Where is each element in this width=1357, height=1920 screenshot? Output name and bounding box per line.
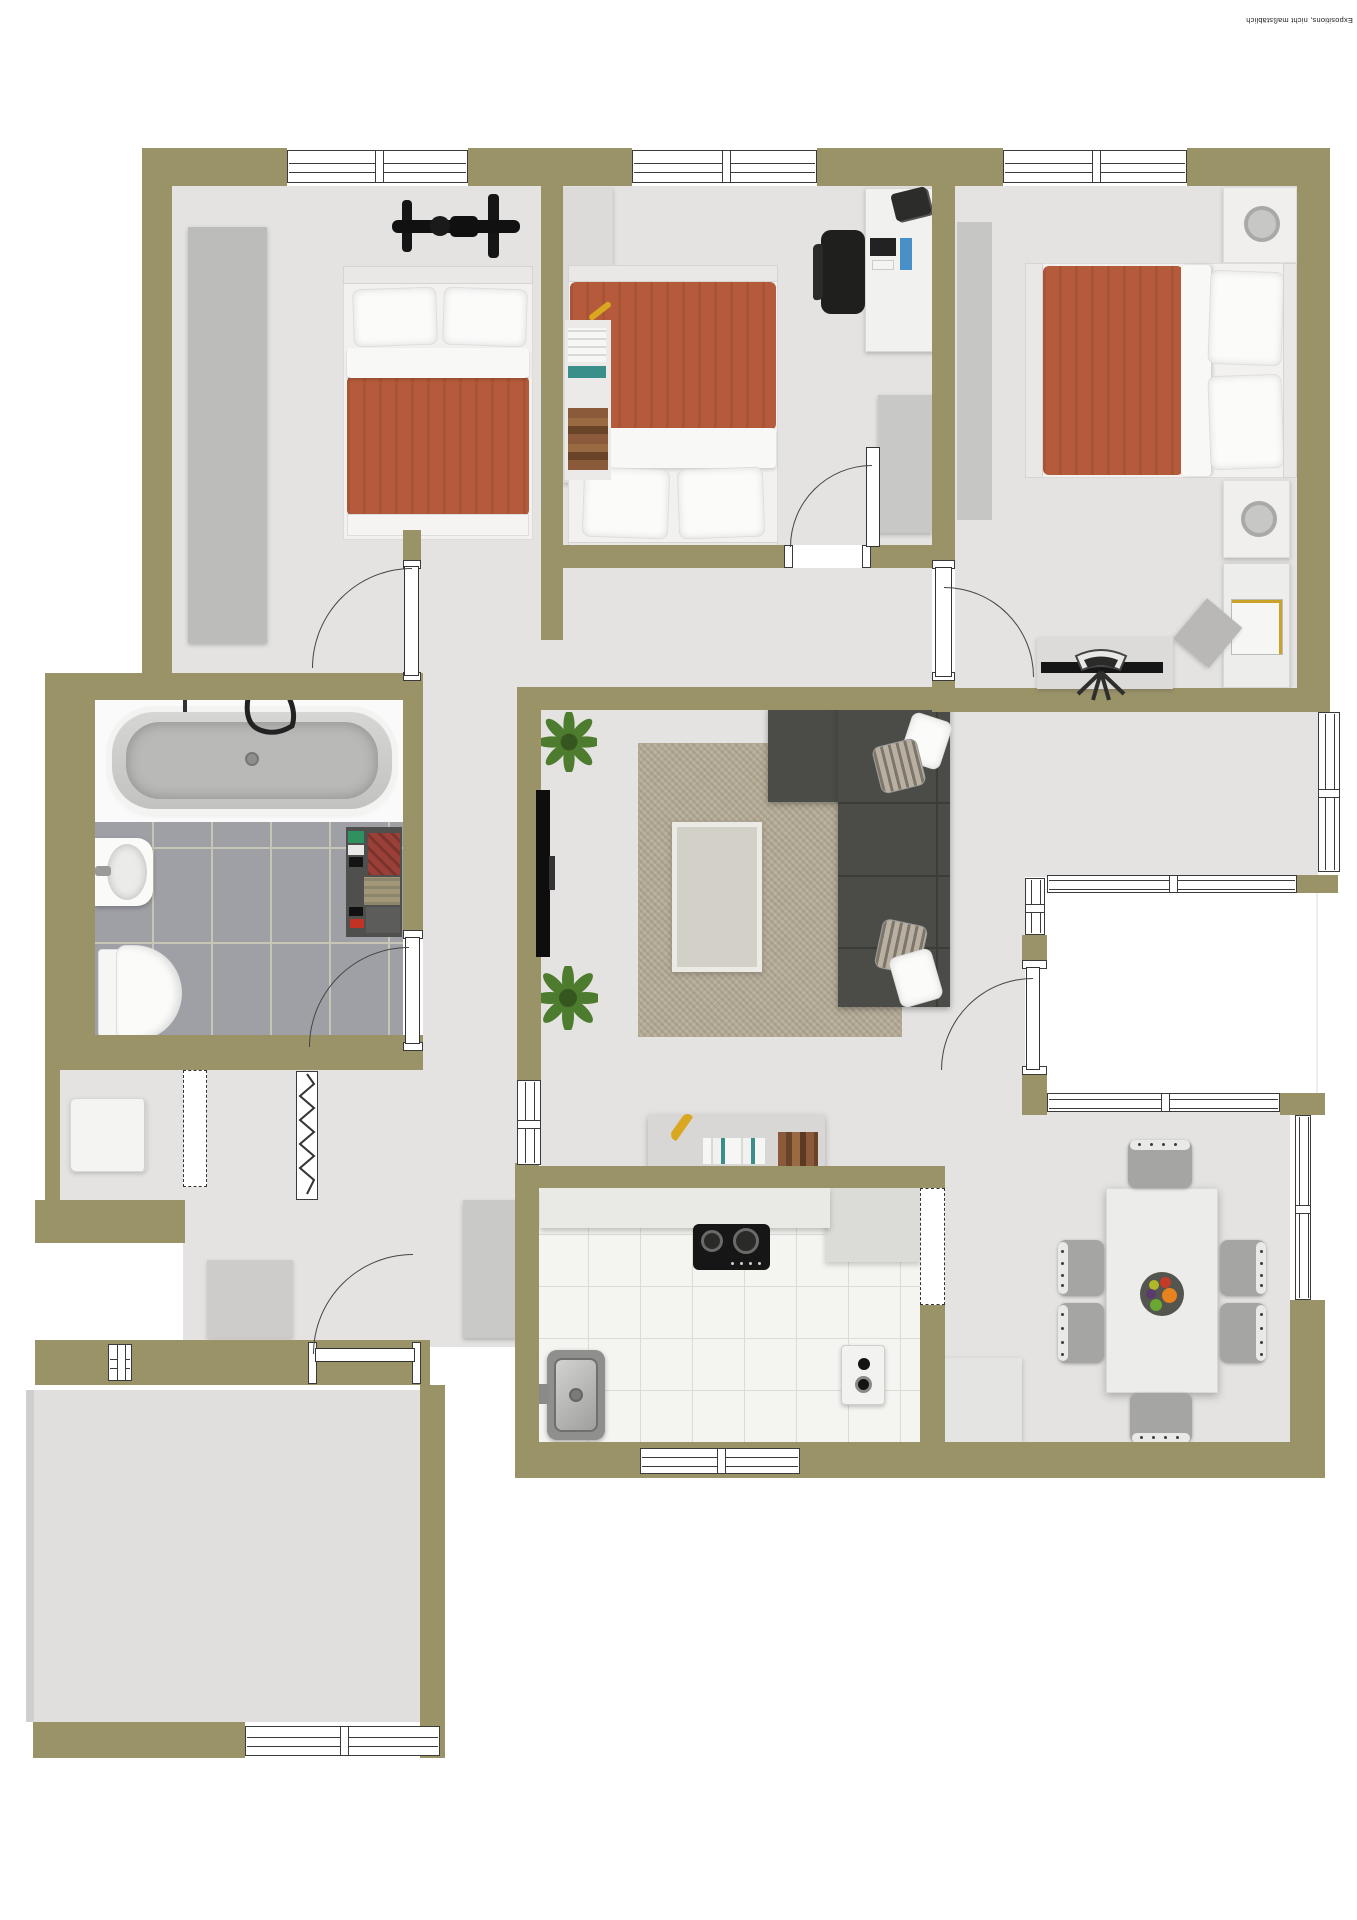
paper-blue [900, 238, 912, 270]
bed-headboard [1283, 263, 1297, 478]
wall [515, 1163, 539, 1478]
window [245, 1726, 440, 1756]
wall [817, 148, 1003, 186]
washing-machine [70, 1098, 147, 1172]
sofa-seam [838, 802, 950, 804]
wall [1297, 186, 1330, 712]
window [1295, 1115, 1311, 1300]
wall [142, 148, 287, 186]
shower-hose-icon [242, 694, 298, 736]
window [1047, 1093, 1280, 1112]
dining-chair [1220, 1303, 1266, 1363]
dining-chair [1130, 1393, 1192, 1443]
fruit-orange [1162, 1288, 1177, 1303]
dining-chair [1220, 1240, 1266, 1296]
gas-hob [693, 1224, 770, 1270]
keyboard [872, 260, 894, 270]
bedroom-2-bookshelf [565, 320, 611, 480]
living-extension-floor [955, 712, 1318, 877]
window [1047, 875, 1297, 893]
burner [701, 1230, 723, 1252]
wall [420, 1385, 445, 1758]
basin-bowl [107, 844, 147, 900]
sofa-seam [838, 875, 950, 877]
wall [35, 1200, 185, 1243]
office-chair-icon [1058, 648, 1144, 704]
bicycle-icon [390, 192, 525, 262]
window [1003, 150, 1187, 183]
bedroom-3-bed [1025, 263, 1297, 478]
kitchen-counter-top [540, 1188, 830, 1228]
storage-opening [183, 1070, 207, 1187]
toilet [98, 945, 184, 1043]
books-brown [568, 408, 608, 470]
wall [1297, 875, 1338, 893]
door-jamb [784, 545, 793, 568]
clothes-black [349, 857, 363, 867]
shoe-black [349, 907, 363, 916]
bathroom-shelf-clothes [346, 827, 402, 937]
books-white [568, 328, 606, 362]
watermark-text: Expositions, nicht maßstäblich [1246, 16, 1353, 25]
office-chair [813, 226, 873, 318]
coffee-table [672, 822, 762, 972]
knob [740, 1262, 743, 1265]
doormat [207, 1260, 293, 1338]
wall [920, 1303, 945, 1442]
books-white-teal [703, 1138, 765, 1164]
sink-drain [569, 1388, 583, 1402]
wall [1290, 1300, 1325, 1442]
bed-blanket [347, 376, 529, 516]
wall [541, 568, 563, 640]
wall [45, 673, 423, 700]
wall [468, 148, 632, 186]
kitchen-appliance [841, 1345, 885, 1405]
bedroom-1-bed [343, 266, 533, 540]
window [640, 1448, 800, 1474]
bed-pillow [677, 467, 765, 540]
window [108, 1344, 132, 1381]
wall [142, 186, 172, 690]
fruit-red [1160, 1277, 1171, 1288]
wall [1280, 1093, 1325, 1115]
dining-chair [1128, 1140, 1192, 1188]
dining-chair [1058, 1240, 1104, 1296]
fruit-green [1150, 1299, 1162, 1311]
wall-shelf-books [648, 1114, 825, 1168]
appliance-dot [855, 1376, 872, 1393]
bed-pillow [1207, 270, 1284, 367]
bed-pillow [352, 287, 438, 348]
wall [541, 186, 563, 568]
bed-footboard [1025, 263, 1043, 478]
wall [541, 545, 790, 568]
bedroom-1-wardrobe [188, 227, 267, 643]
books-teal [568, 366, 606, 378]
banana-icon [669, 1112, 694, 1142]
wall [867, 545, 932, 568]
wall [932, 186, 955, 567]
wall [33, 1722, 245, 1758]
bedroom-3-floor-runner [957, 222, 992, 520]
fruit-bowl [1140, 1272, 1184, 1316]
balcony-floor [1045, 893, 1318, 1093]
window [1025, 878, 1045, 935]
knob [731, 1262, 734, 1265]
wall [45, 700, 95, 1045]
hall-cabinet [463, 1200, 520, 1338]
tv-mount [549, 856, 555, 890]
nightstand-bottom [1223, 480, 1290, 558]
bed-footboard [568, 265, 778, 282]
wall-edge [26, 1390, 34, 1722]
knob [758, 1262, 761, 1265]
wall [517, 687, 955, 710]
kitchen-sink [547, 1350, 605, 1440]
bed-blanket [1043, 266, 1183, 475]
wall [515, 1442, 1325, 1478]
interior-glass-door [517, 1080, 541, 1165]
floorplan-canvas: Expositions, nicht maßstäblich [0, 0, 1357, 1920]
books-brown [778, 1132, 818, 1166]
kitchen-pass-through [920, 1188, 945, 1305]
bathtub-drain [245, 752, 259, 766]
clothes-dark [366, 907, 400, 933]
wall [537, 1166, 945, 1188]
window [287, 150, 468, 183]
monitor-keyboard [870, 238, 900, 274]
door-jamb [862, 545, 871, 568]
clothes-khaki [364, 877, 400, 905]
lamp-icon [1244, 206, 1280, 242]
nightstand-top [1223, 187, 1297, 263]
kitchen-counter-right [825, 1188, 920, 1262]
clothes-green [348, 831, 364, 843]
window [1318, 712, 1340, 872]
wall [45, 1045, 60, 1203]
wall [1022, 1073, 1047, 1115]
basin-tap-icon [95, 866, 111, 876]
bottom-left-room-floor [33, 1390, 421, 1722]
toilet-bowl [116, 945, 182, 1041]
dining-chair [1058, 1303, 1104, 1363]
bed-pillow [1207, 374, 1284, 471]
lamp-icon [1241, 501, 1277, 537]
wall [403, 700, 423, 937]
bed-headboard [343, 266, 533, 284]
window [632, 150, 817, 183]
plant-icon [541, 712, 597, 772]
bed-foot-sheet [347, 514, 529, 536]
fruit-purple [1146, 1289, 1156, 1299]
appliance-dot [858, 1358, 870, 1370]
shoe-red [350, 919, 364, 928]
chair-arm [813, 243, 823, 300]
wall-tv [536, 790, 550, 957]
bedroom-2-cabinet [878, 395, 932, 533]
washbasin [95, 838, 153, 906]
folding-door [296, 1071, 318, 1200]
dining-sideboard [942, 1358, 1022, 1442]
chair-back [821, 230, 865, 314]
clothes-white [348, 845, 364, 855]
hallway-floor [421, 568, 932, 687]
bed-sheet-fold [347, 348, 529, 378]
burner [733, 1228, 759, 1254]
clothes-red [368, 833, 400, 875]
wall [1187, 148, 1330, 186]
monitor [870, 238, 896, 256]
plant-icon [538, 966, 598, 1030]
sofa-chaise-section [768, 707, 848, 802]
bed-pillow [442, 287, 528, 348]
bed-sheet-fold [1181, 265, 1211, 476]
knob [749, 1262, 752, 1265]
